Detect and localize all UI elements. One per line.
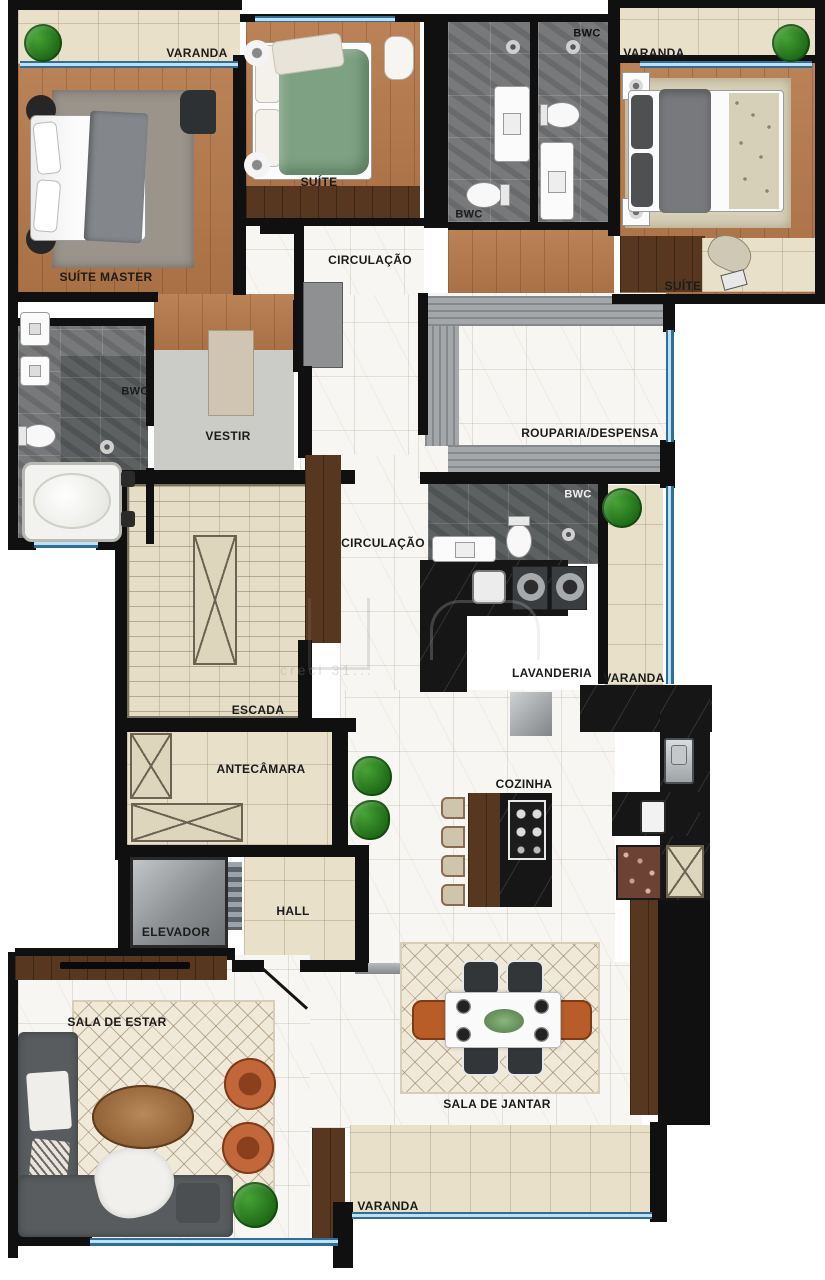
- washer-drum: [517, 573, 545, 601]
- island-wood-bar: [468, 793, 500, 907]
- sink-icon: [20, 312, 50, 346]
- antecamara-closet-2: [131, 803, 243, 842]
- sofa-cushion: [26, 1071, 72, 1132]
- bathtub-icon: [22, 462, 122, 542]
- floor-plan: VARANDA SUÍTE MASTER SUÍTE CIRCULAÇÃO BW…: [0, 0, 825, 1280]
- bwc3-counter: [432, 536, 496, 562]
- chair-icon: [384, 36, 414, 80]
- room-label-varanda-right: VARANDA: [603, 672, 664, 684]
- stool-icon: [441, 884, 465, 906]
- wall: [815, 0, 825, 304]
- wall: [232, 960, 264, 972]
- wall: [418, 293, 428, 435]
- pillow-dark: [631, 153, 653, 207]
- nightstand-icon: [244, 152, 270, 178]
- room-label-suite-2: SUÍTE: [301, 176, 338, 188]
- watermark-logo: [430, 600, 540, 660]
- wall: [8, 952, 18, 1258]
- kitchen-module: [510, 692, 552, 736]
- sink-basin: [671, 745, 687, 765]
- fridge-icon: [640, 800, 666, 834]
- room-label-vestir: VESTIR: [205, 430, 250, 442]
- shower-head-icon: [566, 40, 580, 54]
- elevador-door: [228, 862, 242, 930]
- sink-basin: [455, 542, 475, 558]
- wall: [608, 0, 620, 236]
- tv-icon: [60, 962, 190, 969]
- toilet-tank: [540, 104, 548, 126]
- dryer-drum: [556, 573, 584, 601]
- sink-basin: [503, 113, 521, 135]
- wall: [118, 845, 130, 957]
- sink-basin: [29, 323, 41, 335]
- plate-icon: [534, 1027, 549, 1042]
- plate-icon: [456, 1027, 471, 1042]
- wall: [146, 318, 154, 426]
- room-label-varanda-top-right: VARANDA: [623, 47, 684, 59]
- bwc2-counter: [540, 142, 574, 220]
- wall: [424, 14, 448, 228]
- wall: [8, 0, 18, 302]
- blanket: [659, 89, 711, 213]
- plate-icon: [456, 999, 471, 1014]
- sink-basin: [29, 365, 41, 377]
- wall: [420, 472, 672, 484]
- shower-head-icon: [506, 40, 520, 54]
- glass-railing: [20, 61, 238, 68]
- tv-console: [15, 956, 227, 980]
- dotted-throw: [729, 93, 779, 209]
- nightstand-icon: [244, 40, 270, 66]
- wall: [333, 1202, 353, 1268]
- room-label-circulacao-1: CIRCULAÇÃO: [328, 254, 412, 266]
- room-label-bwc-2: BWC: [455, 210, 482, 221]
- accent-chair: [222, 1122, 274, 1174]
- armchair-icon: [180, 90, 216, 134]
- dining-chair: [506, 960, 544, 996]
- room-label-suite-3: SUÍTE: [665, 280, 702, 292]
- plant-icon: [352, 756, 392, 796]
- dryer-icon: [551, 566, 587, 610]
- dining-end-chair: [412, 1000, 448, 1040]
- stool-icon: [441, 855, 465, 877]
- tub-fixture: [121, 471, 135, 487]
- wall: [233, 55, 246, 295]
- wall: [8, 302, 18, 550]
- pillow-dark: [631, 95, 653, 149]
- plant-icon: [24, 24, 62, 62]
- room-label-escada: ESCADA: [232, 704, 284, 716]
- toilet-tank: [508, 516, 530, 526]
- glass-window: [666, 330, 674, 442]
- vestir-wardrobe: [303, 282, 343, 368]
- tub-fixture: [121, 511, 135, 527]
- glass-railing: [640, 61, 812, 68]
- glass-railing: [90, 1238, 338, 1246]
- room-label-sala-jantar: SALA DE JANTAR: [443, 1098, 551, 1110]
- vestir-rug: [208, 330, 254, 416]
- wall: [8, 0, 242, 10]
- wall: [332, 718, 348, 850]
- wall: [658, 900, 710, 1125]
- watermark-logo: [308, 598, 370, 670]
- centerpiece-greenery: [484, 1009, 524, 1033]
- dining-chair: [462, 960, 500, 996]
- wall: [298, 366, 312, 458]
- coffee-table-icon: [92, 1085, 194, 1149]
- wood-pillar: [630, 900, 660, 1115]
- wall: [612, 0, 825, 8]
- room-label-antecamara: ANTECÂMARA: [217, 763, 306, 775]
- toilet-icon: [544, 102, 580, 128]
- antecamara-closet-1: [130, 733, 172, 799]
- wall: [530, 22, 538, 222]
- bathtub-basin: [33, 473, 111, 529]
- corridor-wood: [448, 228, 614, 294]
- room-label-circulacao-2: CIRCULAÇÃO: [341, 537, 425, 549]
- room-label-lavanderia: LAVANDERIA: [512, 667, 592, 679]
- sofa-cushion: [176, 1183, 220, 1223]
- toilet-icon: [22, 424, 56, 448]
- wall: [660, 440, 675, 488]
- wall: [232, 845, 358, 857]
- accent-chair: [224, 1058, 276, 1110]
- wall: [663, 300, 675, 332]
- kitchen-cabinet-box: [666, 845, 704, 898]
- wall: [355, 845, 369, 973]
- bed-suite-2: [252, 42, 372, 180]
- wall: [650, 1122, 667, 1222]
- bwc1-counter: [494, 86, 530, 162]
- toilet-tank: [18, 426, 27, 446]
- toilet-icon: [506, 524, 532, 558]
- shower-head-icon: [100, 440, 114, 454]
- glass-railing: [352, 1212, 652, 1219]
- bed-suite-3: [628, 90, 784, 212]
- watermark-text: creci 31...: [280, 662, 374, 678]
- pillow: [32, 121, 61, 175]
- stool-icon: [441, 797, 465, 819]
- room-label-bwc-3: BWC: [564, 490, 591, 501]
- room-label-sala-estar: SALA DE ESTAR: [67, 1016, 166, 1028]
- sink-basin: [548, 171, 566, 193]
- plant-icon: [602, 488, 642, 528]
- bed-suite-master: [30, 115, 146, 241]
- wall: [300, 960, 368, 972]
- room-label-cozinha: COZINHA: [496, 778, 553, 790]
- plate-icon: [534, 999, 549, 1014]
- room-label-rouparia: ROUPARIA/DESPENSA: [521, 427, 659, 439]
- room-label-bwc-master: BWC: [121, 387, 148, 398]
- room-label-elevador: ELEVADOR: [142, 926, 210, 938]
- pillow: [33, 179, 61, 233]
- dining-end-chair: [556, 1000, 592, 1040]
- laundry-sink: [472, 570, 506, 604]
- room-label-suite-master: SUÍTE MASTER: [60, 271, 153, 283]
- glass-railing: [666, 486, 674, 684]
- plant-icon: [772, 24, 810, 62]
- glass-window: [255, 16, 395, 22]
- plant-icon: [350, 800, 390, 840]
- room-label-varanda-top-left: VARANDA: [166, 47, 227, 59]
- suite-2-wardrobe: [246, 186, 420, 220]
- wall: [246, 218, 426, 226]
- sofa-bottom: [18, 1175, 233, 1237]
- rouparia-shelf-bottom: [448, 445, 664, 475]
- plant-icon: [232, 1182, 278, 1228]
- wall: [118, 718, 356, 732]
- room-label-bwc-1: BWC: [573, 29, 600, 40]
- wall: [8, 292, 158, 302]
- stove-icon: [508, 800, 546, 860]
- toilet-tank: [500, 184, 510, 206]
- wall: [612, 294, 825, 304]
- kitchen-sink: [664, 738, 694, 784]
- blanket: [84, 111, 149, 244]
- shower-head-icon: [562, 528, 575, 541]
- escada-landing: [193, 535, 237, 665]
- kitchen-deco-rug: [616, 845, 662, 900]
- stool-icon: [441, 826, 465, 848]
- room-label-varanda-bottom: VARANDA: [357, 1200, 418, 1212]
- wall: [448, 222, 616, 230]
- dining-table: [445, 992, 561, 1048]
- toilet-icon: [466, 182, 502, 208]
- sink-icon: [20, 356, 50, 386]
- wall: [118, 845, 242, 857]
- room-label-hall: HALL: [276, 905, 309, 917]
- wall: [445, 14, 617, 22]
- rouparia-shelf-left: [425, 326, 459, 446]
